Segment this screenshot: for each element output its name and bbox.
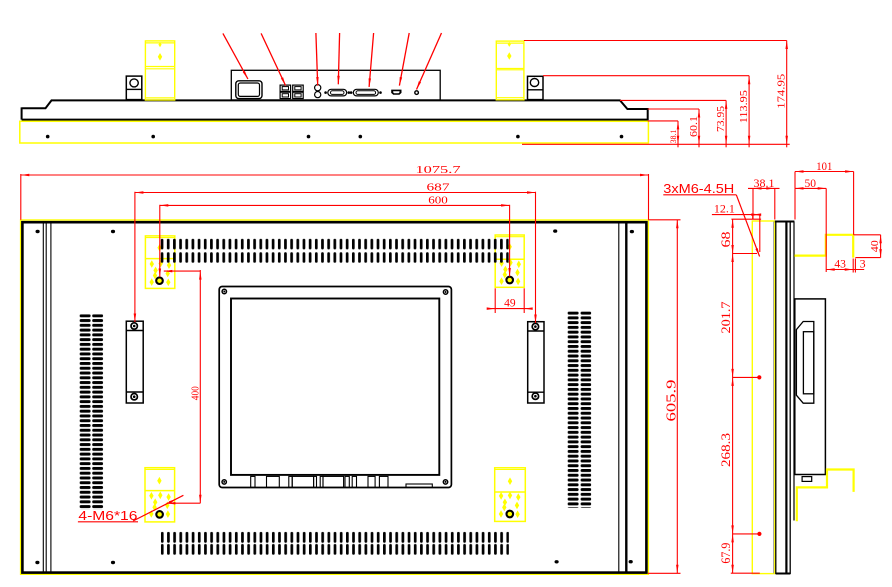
svg-text:73.95: 73.95 <box>716 106 727 132</box>
svg-text:1075.7: 1075.7 <box>416 164 462 176</box>
svg-text:174.95: 174.95 <box>777 74 788 109</box>
svg-text:113.95: 113.95 <box>739 90 750 123</box>
svg-text:67.9: 67.9 <box>719 543 733 564</box>
svg-text:43: 43 <box>834 257 846 271</box>
svg-text:68: 68 <box>719 232 733 248</box>
svg-text:101: 101 <box>816 159 832 173</box>
svg-text:38.1: 38.1 <box>754 176 775 190</box>
svg-text:3xM6-4.5H: 3xM6-4.5H <box>663 182 734 196</box>
svg-text:268.3: 268.3 <box>719 433 733 467</box>
svg-text:60.1: 60.1 <box>689 116 700 137</box>
svg-text:600: 600 <box>428 195 448 207</box>
svg-text:201.7: 201.7 <box>719 302 733 334</box>
svg-text:49: 49 <box>504 298 516 310</box>
svg-text:605.9: 605.9 <box>664 379 679 421</box>
svg-text:40: 40 <box>870 240 881 252</box>
svg-text:12.1: 12.1 <box>714 202 735 216</box>
svg-text:687: 687 <box>427 182 451 194</box>
svg-text:400: 400 <box>191 386 202 400</box>
svg-text:50: 50 <box>805 176 817 190</box>
svg-text:38.1: 38.1 <box>668 130 678 144</box>
svg-text:3: 3 <box>860 257 866 271</box>
svg-text:4-M6*16: 4-M6*16 <box>78 509 137 523</box>
